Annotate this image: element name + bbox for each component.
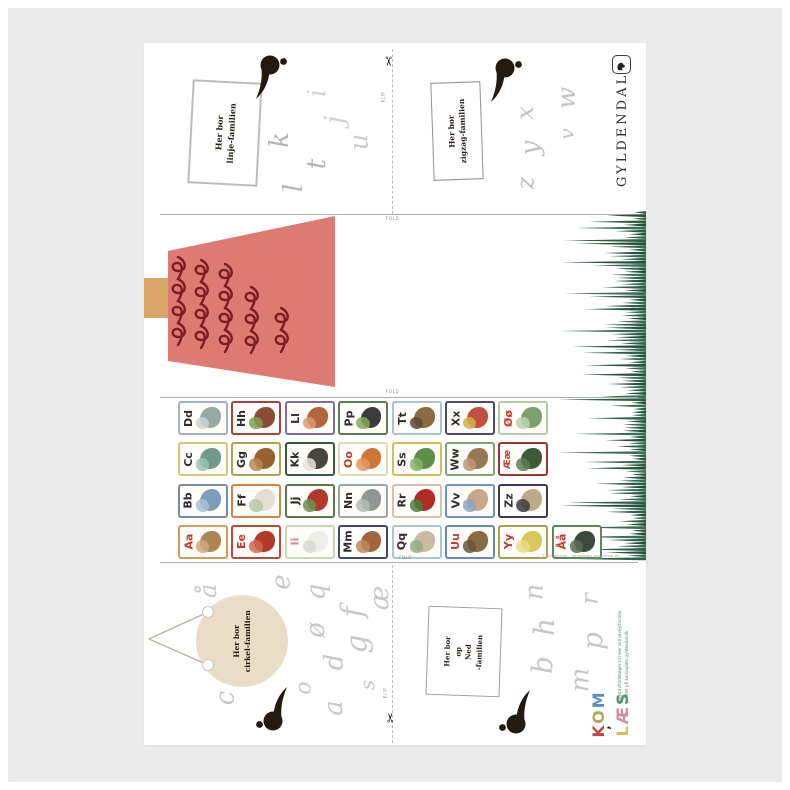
zigzag-family-box: Her bor zigzag-familien — [430, 81, 483, 181]
scattered-letter-i: i — [305, 89, 329, 97]
card-letter-pair: Zz — [503, 493, 514, 507]
scissors-icon: ✂ — [385, 712, 398, 723]
grass-illustration — [556, 211, 646, 563]
card-letter-pair: Cc — [183, 452, 194, 467]
igloo-illustration — [303, 528, 332, 556]
printable-sheet: Her bor linje-familien ijuktl ✂ KLIP Her… — [144, 43, 646, 745]
scissors-icon: ✂ — [381, 56, 394, 67]
comma-mark-icon — [258, 55, 288, 101]
letter-card-Yy: Yy — [498, 525, 548, 559]
yoghurt-illustration — [516, 528, 545, 556]
letter-card-Tt: Tt — [392, 401, 442, 435]
card-letter-pair: Yy — [503, 534, 514, 549]
xylophone-illustration — [463, 404, 492, 432]
letter-card-Ww: Ww — [445, 442, 495, 476]
scattered-letter-q: q — [303, 584, 329, 601]
card-letter-pair: Kk — [290, 451, 301, 467]
card-letter-pair: Mm — [343, 531, 354, 553]
fold-label: FOLD — [386, 390, 399, 394]
card-letter-pair: Tt — [397, 412, 408, 425]
zigzag-family-label-2: zigzag-familien — [456, 98, 469, 163]
fold-label: FOLD — [399, 556, 412, 560]
worm-illustration — [356, 445, 385, 473]
scattered-letter-b: b — [529, 656, 557, 674]
whale-illustration — [196, 487, 225, 515]
scattered-letter-y: y — [517, 141, 543, 156]
letter-card-Bb: Bb — [178, 484, 228, 518]
child-illustration — [463, 487, 492, 515]
card-letter-pair: Pp — [343, 410, 354, 426]
letter-card-Xx: Xx — [445, 401, 495, 435]
letter-card-Ii: Ii — [285, 525, 335, 559]
logo-letter-M: M — [589, 690, 608, 708]
scattered-letter-u: u — [346, 134, 372, 151]
klip-label: KLIP — [383, 688, 387, 699]
scattered-letter-v: v — [557, 128, 577, 139]
letter-card-Oo: Oo — [338, 442, 388, 476]
comma-mark-icon — [255, 685, 285, 731]
card-letter-pair: Qq — [397, 533, 408, 550]
letter-card-Kk: Kk — [285, 442, 335, 476]
letter-card-Dd: Dd — [178, 401, 228, 435]
letter-card-Rr: Rr — [392, 484, 442, 518]
scattered-letter-r: r — [578, 593, 602, 604]
card-letter-pair: Vv — [450, 493, 461, 509]
green-fine-print: Bogstavfoldebøger til hver skrivevejsfam… — [617, 583, 629, 703]
monkey-illustration — [196, 528, 225, 556]
scattered-letter-p: p — [579, 632, 607, 650]
letter-card-Ee: Ee — [231, 525, 281, 559]
fold-line-3 — [160, 562, 638, 563]
letter-card-Cc: Cc — [178, 442, 228, 476]
letter-card-Aa: Aa — [178, 525, 228, 559]
pastry-illustration — [303, 404, 332, 432]
letter-card-Pp: Pp — [338, 401, 388, 435]
logo-letter-L: L — [613, 724, 632, 736]
snake-illustration — [410, 445, 439, 473]
letter-card-Jj: Jj — [285, 484, 335, 518]
letter-card-Gg: Gg — [231, 442, 281, 476]
card-letter-pair: Ss — [397, 452, 408, 466]
letter-card-Hh: Hh — [231, 401, 281, 435]
letter-card-Uu: Uu — [445, 525, 495, 559]
comma-mark-icon — [493, 58, 523, 104]
linje-family-label-2: linje-familien — [223, 103, 238, 164]
letter-card-Zz: Zz — [498, 484, 548, 518]
christmas-tree-illustration — [144, 211, 344, 397]
zebra-illustration — [516, 487, 545, 515]
scattered-letter-z: z — [513, 177, 537, 190]
toad-illustration — [410, 404, 439, 432]
donkey-illustration — [516, 445, 545, 473]
credit-fine-print: © Gyldendal · komoglæs.gyldendal.dk — [542, 554, 620, 558]
card-letter-pair: Ww — [450, 448, 461, 470]
letter-card-Ææ: Ææ — [498, 442, 548, 476]
house-illustration — [249, 404, 278, 432]
island-illustration — [516, 404, 545, 432]
scattered-letter-a: a — [321, 700, 347, 716]
scattered-letter-f: f — [339, 606, 369, 617]
publisher-name: GYLDENDAL — [613, 77, 633, 187]
op-ned-family-label-1: Her bor — [442, 633, 454, 669]
card-letter-pair: Nn — [343, 492, 354, 509]
logo-comma-icon: , — [600, 725, 613, 729]
card-letter-pair: Ee — [236, 534, 247, 549]
squirrel-illustration — [249, 528, 278, 556]
guitar-illustration — [249, 445, 278, 473]
letter-card-Mm: Mm — [338, 525, 388, 559]
scattered-letter-k: k — [267, 132, 293, 148]
card-letter-pair: Xx — [450, 410, 461, 426]
panda-illustration — [356, 404, 385, 432]
letter-card-Qq: Qq — [392, 525, 442, 559]
card-letter-pair: Ææ — [504, 450, 513, 469]
card-letter-pair: Rr — [397, 494, 408, 508]
scattered-letter-e: e — [269, 574, 295, 589]
klip-label: KLIP — [381, 92, 385, 103]
scattered-letter-x: x — [513, 106, 537, 120]
card-letter-pair: Gg — [236, 451, 247, 468]
scattered-letter-t: t — [304, 159, 330, 169]
card-letter-pair: Ll — [290, 413, 301, 424]
scattered-letter-c: c — [212, 691, 238, 706]
scattered-letter-j: j — [322, 116, 348, 124]
rhino-illustration — [356, 487, 385, 515]
card-letter-pair: Bb — [183, 492, 194, 508]
scattered-letter-n: n — [521, 584, 547, 601]
card-letter-pair: Øø — [503, 410, 514, 427]
letter-card-Vv: Vv — [445, 484, 495, 518]
cut-line-top — [392, 49, 393, 214]
logo-letter-Æ: Æ — [613, 705, 632, 724]
letter-card-Øø: Øø — [498, 401, 548, 435]
cow-illustration — [303, 445, 332, 473]
kom-logo-word: KOM — [590, 686, 608, 742]
scattered-letter-o: o — [294, 681, 316, 694]
card-letter-pair: Jj — [290, 497, 301, 505]
cirkel-family-label-1: Her bor — [231, 610, 242, 672]
scattered-letter-g: g — [343, 634, 373, 653]
fold-line-2 — [160, 397, 638, 398]
letter-card-Ff: Ff — [231, 484, 281, 518]
scattered-letter-l: l — [281, 184, 307, 192]
letter-card-Nn: Nn — [338, 484, 388, 518]
green-fine-print-line-1: Bogstavfoldebøger til hver skrivevejsfam… — [617, 583, 624, 703]
letter-card-Ss: Ss — [392, 442, 442, 476]
card-letter-pair: Hh — [236, 409, 247, 426]
strawberry-illustration — [303, 487, 332, 515]
owl-illustration — [463, 528, 492, 556]
card-letter-pair: Ff — [236, 494, 247, 506]
bicycle-illustration — [196, 445, 225, 473]
scattered-letter-æ: æ — [367, 586, 393, 610]
figure-illustration — [410, 528, 439, 556]
scattered-letter-s: s — [357, 680, 377, 690]
scattered-letter-ø: ø — [303, 622, 329, 638]
dolphin-illustration — [196, 404, 225, 432]
card-letter-pair: Oo — [343, 451, 354, 468]
card-letter-pair: Dd — [183, 409, 194, 426]
linje-family-box: Her bor linje-familien — [187, 79, 262, 187]
comma-mark-icon — [498, 688, 528, 734]
scattered-letter-å: å — [196, 584, 220, 598]
rose-illustration — [410, 487, 439, 515]
scattered-letter-h: h — [531, 618, 559, 636]
card-letter-pair: Aa — [183, 534, 194, 550]
cirkel-family-label-2: cirkel-familien — [242, 610, 253, 672]
op-ned-family-label-4: -familien — [474, 634, 486, 670]
mouse-illustration — [356, 528, 385, 556]
green-fine-print-line-2: printes på komoglæs.gyldendal.dk — [624, 583, 631, 703]
card-letter-pair: Uu — [450, 534, 461, 551]
sheep-illustration — [249, 487, 278, 515]
product-image: Her bor linje-familien ijuktl ✂ KLIP Her… — [0, 0, 790, 790]
gyldendal-bird-icon — [612, 55, 631, 74]
card-letter-pair: Ii — [290, 538, 301, 546]
fold-label: FOLD — [386, 217, 399, 221]
scattered-letter-d: d — [321, 654, 347, 671]
wombat-illustration — [463, 445, 492, 473]
op-ned-family-box: Her bor op Ned -familien — [425, 606, 502, 698]
big-letter-a-outline — [144, 603, 224, 673]
letter-card-Ll: Ll — [285, 401, 335, 435]
logo-letter-O: O — [589, 708, 608, 724]
scattered-letter-w: w — [554, 87, 580, 109]
